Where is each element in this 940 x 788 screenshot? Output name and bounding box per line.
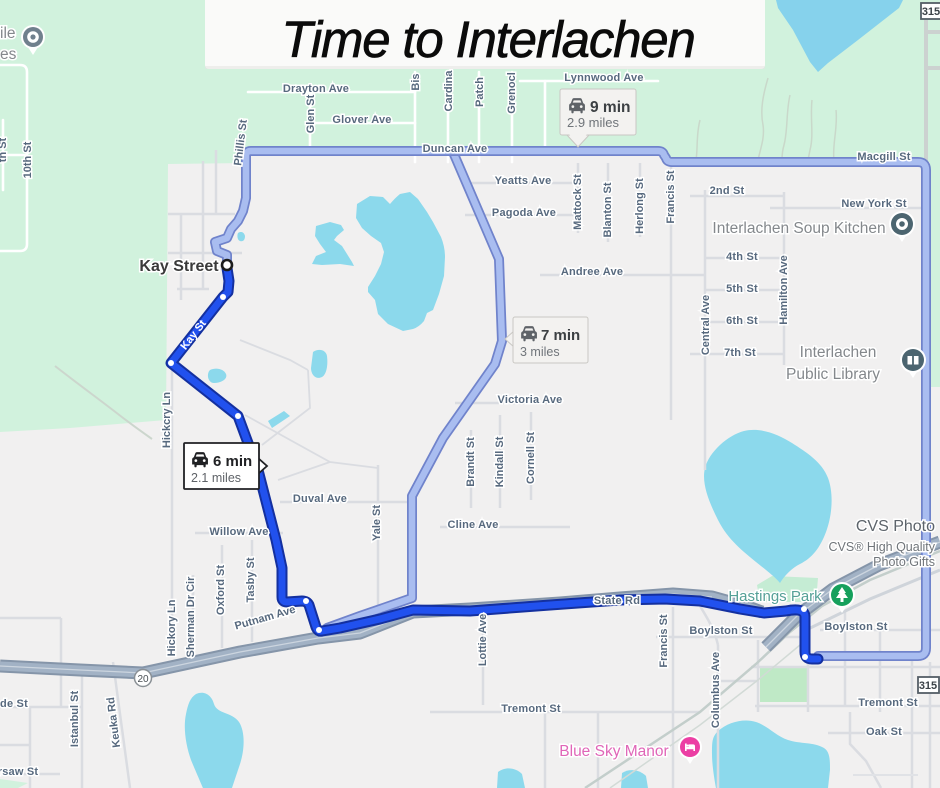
svg-text:Kindall St: Kindall St — [494, 436, 506, 487]
svg-text:4th St: 4th St — [726, 251, 758, 263]
svg-text:Columbus Ave: Columbus Ave — [710, 652, 722, 728]
svg-text:rsaw St: rsaw St — [0, 766, 38, 778]
svg-text:Hamilton Ave: Hamilton Ave — [778, 255, 790, 324]
svg-text:Tremont St: Tremont St — [501, 703, 561, 715]
svg-text:Boylston St: Boylston St — [824, 621, 887, 633]
svg-text:Interlachen Soup Kitchen: Interlachen Soup Kitchen — [712, 220, 885, 237]
svg-text:Francis St: Francis St — [665, 170, 677, 224]
svg-text:CVS® High Quality: CVS® High Quality — [829, 540, 936, 554]
svg-text:Bis: Bis — [410, 73, 422, 90]
svg-text:7 min: 7 min — [541, 327, 580, 344]
svg-text:Brandt St: Brandt St — [465, 437, 477, 487]
svg-text:Andree Ave: Andree Ave — [561, 266, 623, 278]
svg-text:Grenocl: Grenocl — [506, 72, 518, 114]
svg-text:7th St: 7th St — [724, 347, 756, 359]
svg-text:Glover Ave: Glover Ave — [332, 114, 391, 126]
svg-text:Istanbul St: Istanbul St — [69, 691, 81, 748]
svg-text:Blue Sky Manor: Blue Sky Manor — [559, 743, 668, 760]
svg-text:Public Library: Public Library — [786, 366, 880, 383]
svg-text:de St: de St — [0, 698, 28, 710]
svg-text:2.1 miles: 2.1 miles — [191, 471, 241, 485]
svg-text:CVS Photo: CVS Photo — [856, 518, 935, 535]
svg-text:Hastings Park: Hastings Park — [728, 588, 822, 605]
svg-text:Lynnwood Ave: Lynnwood Ave — [564, 72, 643, 84]
svg-text:Yale St: Yale St — [371, 505, 383, 541]
svg-text:ile: ile — [0, 25, 16, 42]
svg-text:2nd St: 2nd St — [710, 185, 745, 197]
svg-text:Interlachen: Interlachen — [800, 344, 877, 361]
svg-text:Cardina: Cardina — [443, 70, 455, 112]
svg-text:es: es — [0, 46, 17, 63]
svg-text:New York St: New York St — [841, 198, 907, 210]
svg-text:5th St: 5th St — [726, 283, 758, 295]
svg-text:Victoria Ave: Victoria Ave — [498, 394, 563, 406]
svg-text:th St: th St — [0, 137, 9, 162]
svg-text:Lottie Ave: Lottie Ave — [477, 614, 489, 666]
svg-text:6 min: 6 min — [213, 453, 252, 470]
svg-text:Kay Street: Kay Street — [139, 258, 219, 275]
svg-text:315: 315 — [922, 6, 940, 18]
svg-text:Drayton Ave: Drayton Ave — [283, 83, 349, 95]
svg-text:Duncan Ave: Duncan Ave — [423, 143, 488, 155]
svg-text:20: 20 — [137, 674, 149, 685]
svg-text:Yeatts Ave: Yeatts Ave — [495, 175, 552, 187]
svg-text:State Rd: State Rd — [594, 595, 640, 607]
svg-text:Glen St: Glen St — [305, 94, 317, 133]
svg-text:Tasby St: Tasby St — [245, 557, 257, 602]
svg-text:3 miles: 3 miles — [520, 345, 560, 359]
svg-text:Oxford St: Oxford St — [215, 565, 227, 615]
svg-text:Herlong St: Herlong St — [634, 178, 646, 234]
svg-text:Oak St: Oak St — [866, 726, 902, 738]
svg-text:9 min: 9 min — [590, 99, 630, 116]
svg-text:Pagoda Ave: Pagoda Ave — [492, 207, 556, 219]
svg-text:Cline Ave: Cline Ave — [447, 519, 498, 531]
svg-text:Boylston St: Boylston St — [689, 625, 752, 637]
svg-text:Duval Ave: Duval Ave — [293, 493, 347, 505]
svg-text:315: 315 — [919, 680, 937, 692]
svg-text:Time to Interlachen: Time to Interlachen — [281, 11, 694, 68]
svg-text:Central Ave: Central Ave — [700, 295, 712, 355]
svg-text:10th St: 10th St — [22, 141, 34, 178]
svg-text:Hickcry Ln: Hickcry Ln — [161, 392, 173, 449]
svg-text:Mattock St: Mattock St — [572, 174, 584, 230]
svg-text:Cornell St: Cornell St — [525, 432, 537, 484]
svg-text:2.9 miles: 2.9 miles — [567, 115, 620, 130]
svg-text:Francis St: Francis St — [658, 614, 670, 668]
svg-text:Willow Ave: Willow Ave — [209, 526, 268, 538]
svg-text:Tremont St: Tremont St — [858, 697, 918, 709]
svg-text:Macgill St: Macgill St — [857, 151, 910, 163]
svg-text:Patch: Patch — [474, 77, 486, 107]
svg-text:Sherman Dr Cir: Sherman Dr Cir — [185, 576, 197, 657]
svg-text:Hickory Ln: Hickory Ln — [166, 599, 178, 656]
svg-text:6th St: 6th St — [726, 315, 758, 327]
svg-text:Blanton St: Blanton St — [602, 182, 614, 237]
svg-text:Photo Gifts: Photo Gifts — [873, 555, 935, 569]
